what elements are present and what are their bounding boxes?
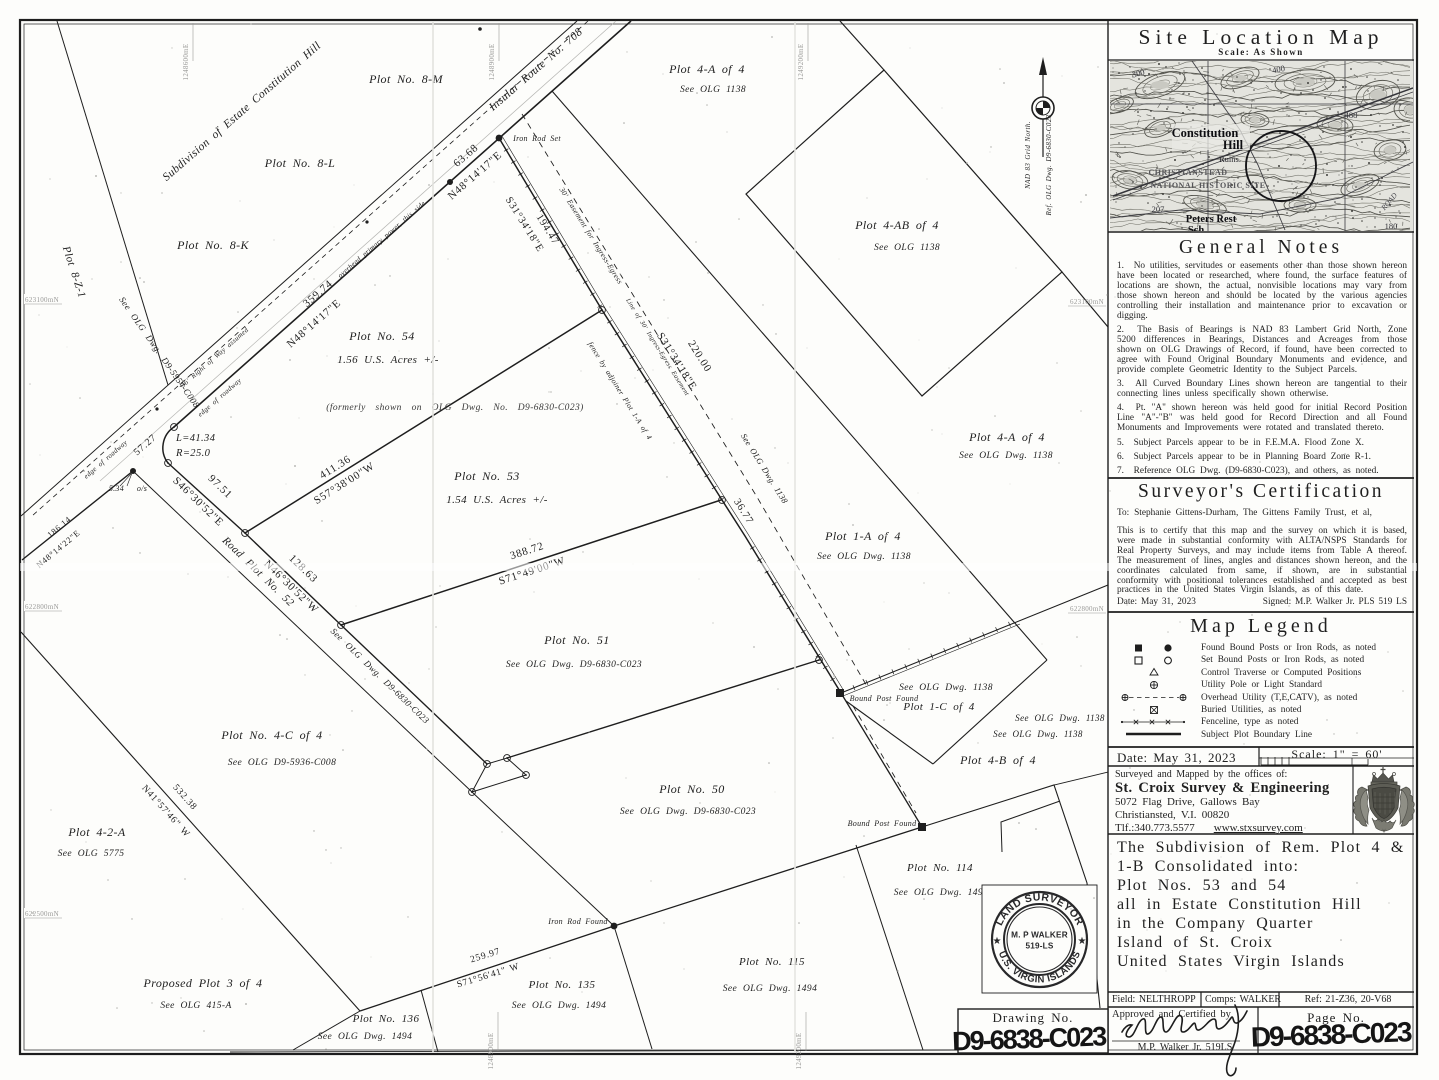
svg-text:NAD 83 Grid North.: NAD 83 Grid North. xyxy=(1024,121,1032,190)
svg-text:Plot No. 8-K: Plot No. 8-K xyxy=(176,238,249,252)
svg-text:5.34 o/s: 5.34 o/s xyxy=(109,484,147,493)
svg-text:Plot No. 114: Plot No. 114 xyxy=(906,862,973,874)
svg-text:1.54 U.S. Acres +/-: 1.54 U.S. Acres +/- xyxy=(446,494,548,506)
svg-text:Plot 1-A of 4: Plot 1-A of 4 xyxy=(824,529,901,543)
svg-text:See OLG Dwg. 1138: See OLG Dwg. 1138 xyxy=(899,683,993,693)
svg-text:1249200mE: 1249200mE xyxy=(797,44,805,81)
svg-text:Plot No. 50: Plot No. 50 xyxy=(658,782,724,796)
svg-text:Plot No. 53: Plot No. 53 xyxy=(453,469,519,483)
svg-text:Bound Post Found: Bound Post Found xyxy=(848,819,917,828)
svg-text:1248900mE: 1248900mE xyxy=(487,1033,495,1070)
svg-text:★: ★ xyxy=(993,936,1002,947)
svg-text:622800mN: 622800mN xyxy=(1070,605,1104,613)
svg-text:488: 488 xyxy=(1345,110,1358,120)
svg-text:623100mN: 623100mN xyxy=(1070,298,1104,306)
svg-text:See OLG Dwg. D9-6830-C023: See OLG Dwg. D9-6830-C023 xyxy=(620,807,756,817)
svg-text:Plot 4-A of 4: Plot 4-A of 4 xyxy=(968,430,1045,444)
svg-text:Plot No. 4-C of 4: Plot No. 4-C of 4 xyxy=(220,728,322,742)
svg-text:Plot No. 51: Plot No. 51 xyxy=(543,633,609,647)
svg-text:Hill: Hill xyxy=(1223,138,1244,152)
svg-text:L=41.34: L=41.34 xyxy=(175,433,216,444)
svg-text:Peters Rest: Peters Rest xyxy=(1186,214,1237,225)
svg-text:See OLG Dwg. 1494: See OLG Dwg. 1494 xyxy=(723,984,817,994)
svg-text:Plot 4-2-A: Plot 4-2-A xyxy=(67,825,126,839)
svg-text:519-LS: 519-LS xyxy=(1025,942,1053,951)
svg-text:Plot 4-A of 4: Plot 4-A of 4 xyxy=(668,62,745,76)
svg-text:See OLG Dwg. 1494: See OLG Dwg. 1494 xyxy=(512,1001,606,1011)
svg-text:See OLG 415-A: See OLG 415-A xyxy=(160,1001,231,1011)
svg-text:See OLG Dwg. 1138: See OLG Dwg. 1138 xyxy=(993,729,1083,739)
svg-text:Iron Rod Found: Iron Rod Found xyxy=(547,917,608,926)
svg-text:See OLG Dwg. 1138: See OLG Dwg. 1138 xyxy=(959,451,1053,461)
svg-text:Plot 4-B of 4: Plot 4-B of 4 xyxy=(959,753,1036,767)
svg-text:★: ★ xyxy=(1078,936,1087,947)
svg-text:Bound Post Found: Bound Post Found xyxy=(850,694,919,703)
svg-text:Plot No. 54: Plot No. 54 xyxy=(348,329,414,343)
svg-text:Iron Rod Set: Iron Rod Set xyxy=(512,134,561,143)
svg-text:D9-6838-C023: D9-6838-C023 xyxy=(952,1021,1108,1056)
svg-text:R=25.0: R=25.0 xyxy=(175,448,211,459)
svg-text:Plot No. 8-L: Plot No. 8-L xyxy=(264,156,335,170)
svg-text:See OLG 1138: See OLG 1138 xyxy=(680,85,746,95)
svg-text:623100mN: 623100mN xyxy=(25,296,59,304)
svg-text:180: 180 xyxy=(1385,221,1398,231)
svg-text:1249200mE: 1249200mE xyxy=(795,1033,803,1070)
svg-text:See OLG Dwg. D9-6830-C023: See OLG Dwg. D9-6830-C023 xyxy=(506,660,642,670)
svg-text:622500mN: 622500mN xyxy=(25,910,59,918)
svg-text:See OLG 5775: See OLG 5775 xyxy=(58,849,125,859)
svg-text:See OLG Dwg. 1138: See OLG Dwg. 1138 xyxy=(817,552,911,562)
svg-text:M. P WALKER: M. P WALKER xyxy=(1011,931,1068,940)
svg-text:207: 207 xyxy=(1152,204,1165,214)
svg-text:Ref. OLG Dwg. D9-6830-C023: Ref. OLG Dwg. D9-6830-C023 xyxy=(1045,114,1053,216)
svg-text:Plot No. 135: Plot No. 135 xyxy=(528,979,596,991)
svg-text:1248900mE: 1248900mE xyxy=(488,44,496,81)
svg-text:Plot No. 136: Plot No. 136 xyxy=(352,1013,420,1025)
svg-text:See OLG Dwg. 1494: See OLG Dwg. 1494 xyxy=(318,1032,412,1042)
svg-text:1.56 U.S. Acres +/-: 1.56 U.S. Acres +/- xyxy=(337,354,439,366)
svg-text:NATIONAL HISTORIC SITE: NATIONAL HISTORIC SITE xyxy=(1150,181,1265,190)
svg-text:Plot 4-AB of 4: Plot 4-AB of 4 xyxy=(854,218,939,232)
svg-text:Ruins.: Ruins. xyxy=(1219,154,1241,164)
svg-text:See OLG Dwg. 1494: See OLG Dwg. 1494 xyxy=(894,888,988,898)
svg-text:See OLG Dwg. 1138: See OLG Dwg. 1138 xyxy=(1015,713,1105,723)
svg-text:(formerly shown on OLG: (formerly shown on OLG Dwg. No. D9-6830-… xyxy=(326,402,583,413)
svg-text:622800mN: 622800mN xyxy=(25,603,59,611)
svg-text:Proposed Plot 3 of 4: Proposed Plot 3 of 4 xyxy=(143,976,263,990)
svg-text:See OLG D9-5936-C008: See OLG D9-5936-C008 xyxy=(228,758,336,768)
svg-text:CHRISTIANSTEAD: CHRISTIANSTEAD xyxy=(1148,168,1227,177)
svg-text:1248600mE: 1248600mE xyxy=(182,44,190,81)
svg-text:Plot No. 8-M: Plot No. 8-M xyxy=(368,72,443,86)
svg-text:See OLG 1138: See OLG 1138 xyxy=(874,243,940,253)
